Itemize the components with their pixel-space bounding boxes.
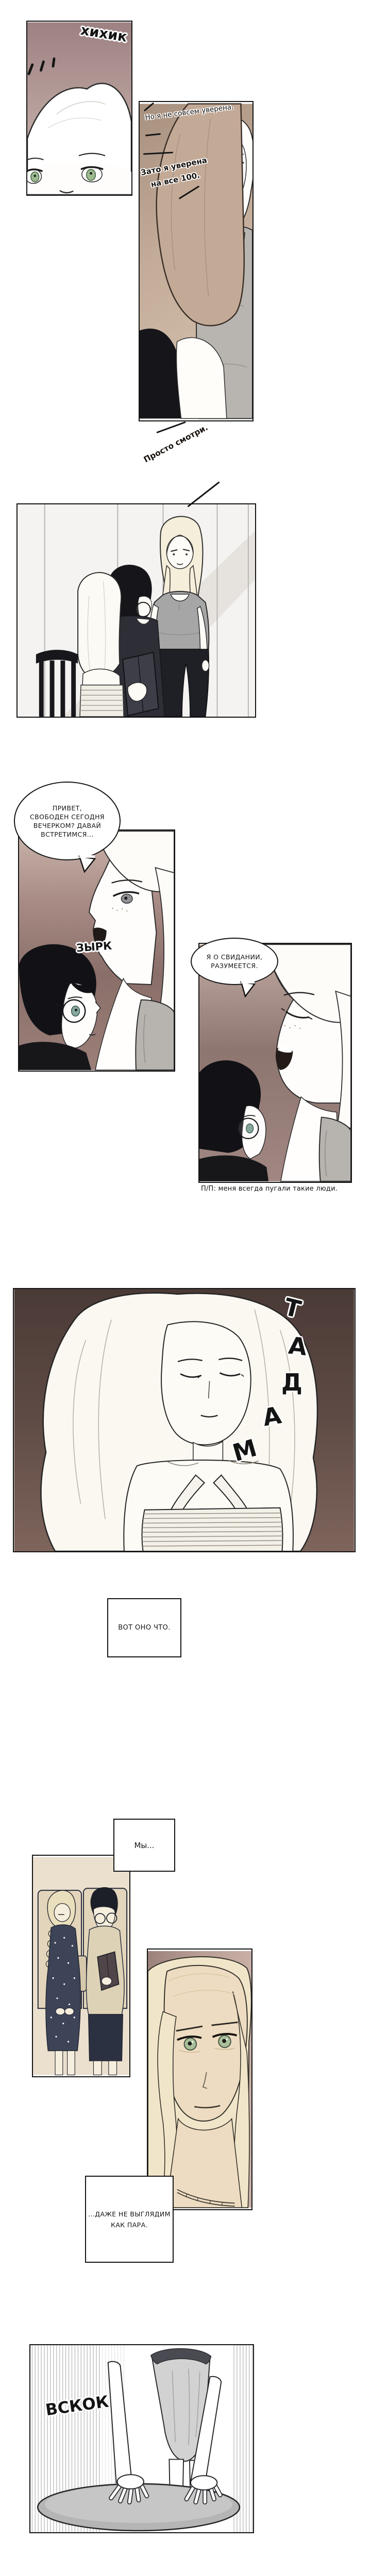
caption-text: КАК ПАРА. — [111, 2219, 148, 2230]
bubble-line: Я О СВИДАНИИ, — [207, 953, 263, 961]
panel-giggle — [26, 21, 132, 196]
panel-tadam — [13, 1288, 356, 1552]
sfx-glance: ЗЫРК — [76, 940, 112, 955]
webtoon-page: хихик — [0, 0, 371, 2576]
bubble-tail — [77, 855, 98, 874]
panel-vskok — [29, 2344, 254, 2533]
bubble-line: СВОБОДЕН СЕГОДНЯ — [30, 812, 105, 821]
sfx-tadam-letter: Д — [281, 1368, 302, 1396]
panel-couple-seats — [32, 1855, 130, 2077]
bubble-line: РАЗУМЕЕТСЯ. — [211, 961, 258, 970]
panel-room — [16, 503, 256, 718]
caption-text: Мы... — [134, 1841, 154, 1850]
speech-bubble-privet: ПРИВЕТ, СВОБОДЕН СЕГОДНЯ ВЕЧЕРКОМ? ДАВАЙ… — [14, 782, 121, 860]
panel-tadam-art — [14, 1289, 355, 1551]
panel-confident-friend — [139, 101, 254, 421]
caption-just-watch: Просто смотри. — [142, 423, 210, 465]
panel-confident-friend-art — [140, 102, 252, 420]
caption-box-my: Мы... — [113, 1819, 175, 1872]
caption-text: ...ДАЖЕ НЕ ВЫГЛЯДИМ — [88, 2209, 171, 2219]
caption-box-para: ...ДАЖЕ НЕ ВЫГЛЯДИМ КАК ПАРА. — [85, 2176, 174, 2263]
bubble-line: ПРИВЕТ, — [53, 804, 82, 812]
stern-woman-face — [148, 1957, 251, 2208]
panel-closeup-stare-art — [148, 1950, 251, 2209]
panel-room-art — [18, 504, 255, 717]
caption-text: ВОТ ОНО ЧТО. — [118, 1624, 171, 1632]
panel-vskok-art — [30, 2345, 253, 2532]
sfx-tadam-letter: А — [287, 1331, 308, 1361]
panel-giggle-art — [27, 22, 131, 195]
emphasis-dash — [156, 421, 185, 433]
panel-couple-seats-art — [33, 1856, 129, 2076]
caption-box-vot: ВОТ ОНО ЧТО. — [107, 1598, 181, 1657]
panel-closeup-stare — [147, 1948, 252, 2210]
bubble-line: ВСТРЕТИМСЯ... — [41, 830, 94, 839]
bubble-tail — [238, 981, 257, 998]
speech-bubble-date: Я О СВИДАНИИ, РАЗУМЕЕТСЯ. — [191, 938, 278, 985]
bubble-line: ВЕЧЕРКОМ? ДАВАЙ — [33, 821, 101, 830]
translator-note: П/П: меня всегда пугали такие люди. — [201, 1185, 338, 1193]
seated-woman-back — [78, 572, 124, 717]
